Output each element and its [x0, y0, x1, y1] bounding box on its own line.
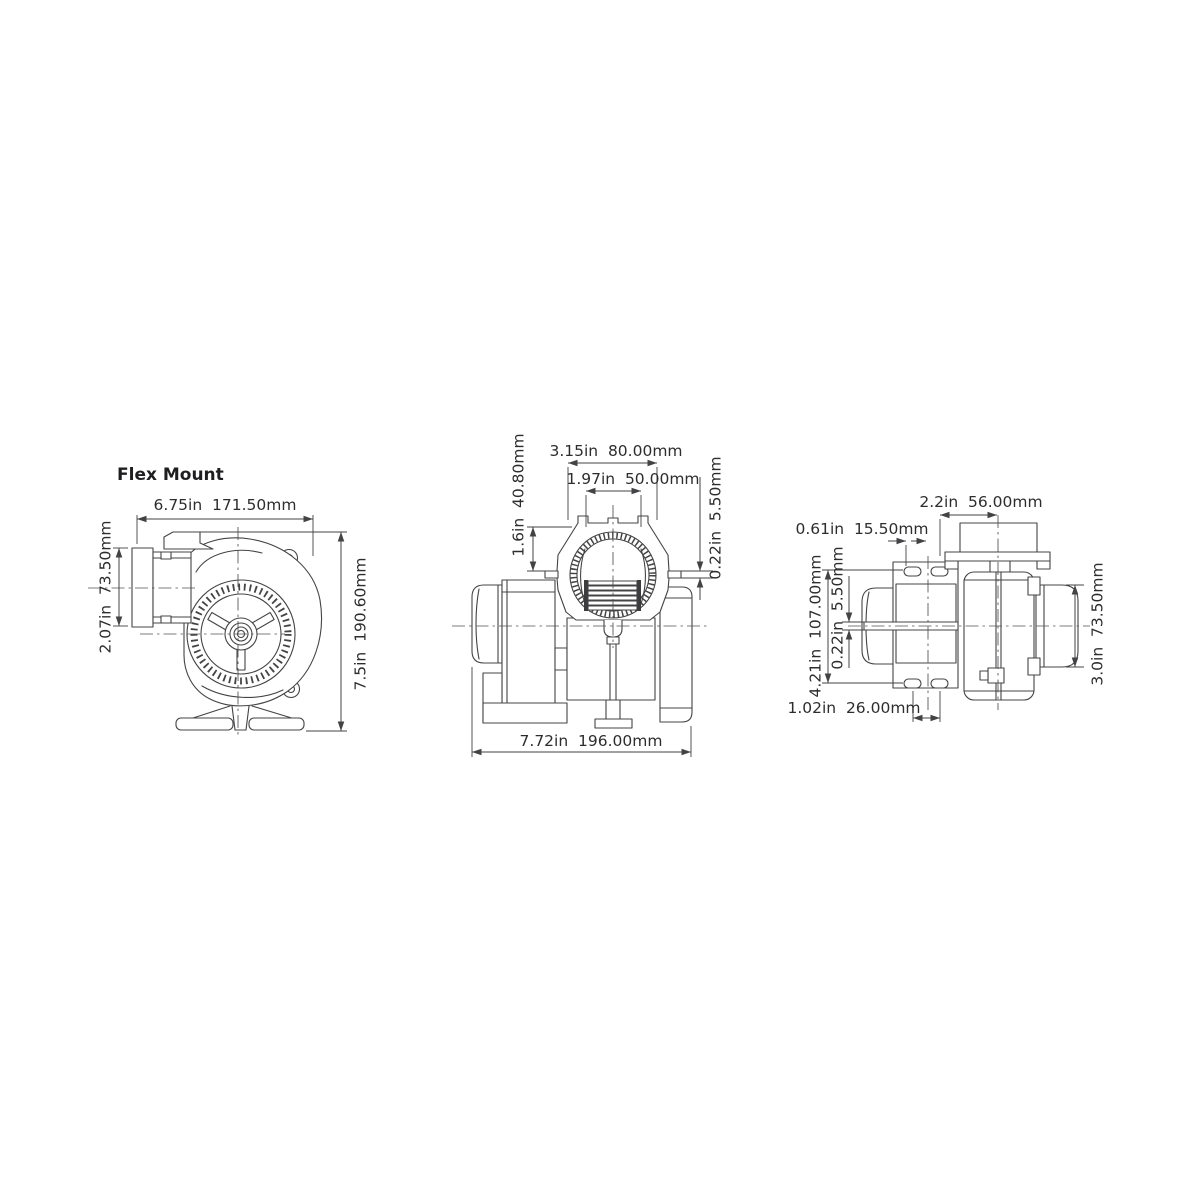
mounting-slot	[904, 679, 921, 688]
mounting-slot	[931, 679, 948, 688]
mounting-slot	[904, 567, 921, 576]
dim-label-flange-height: 1.6in 40.80mm	[510, 433, 528, 556]
inlet-tube	[153, 552, 191, 623]
dim-label-bracket-width: 2.2in 56.00mm	[919, 493, 1042, 511]
inlet-flange	[132, 548, 153, 627]
dim-label-side-inlet-height: 2.07in 73.50mm	[97, 520, 115, 653]
dim-label-flange-width: 3.15in 80.00mm	[549, 442, 682, 460]
dim-label-slot-spacing: 1.02in 26.00mm	[787, 699, 920, 717]
bracket-cap	[960, 523, 1037, 552]
dim-label-lip-thickness: 0.22in 5.50mm	[707, 456, 725, 579]
flange-lip-right	[668, 571, 681, 578]
technical-drawing-svg: Flex Mount	[0, 0, 1200, 1200]
base-foot-right	[249, 718, 304, 730]
drawing-page: Flex Mount	[0, 0, 1200, 1200]
motor-section-left	[502, 580, 555, 712]
motor-half-upper	[896, 584, 956, 622]
dim-label-overall-length: 7.72in 196.00mm	[520, 732, 663, 750]
end-view: 2.2in 56.00mm 0.61in 15.50mm 4.21in 107.…	[787, 493, 1106, 722]
dim-label-outlet-diameter: 3.0in 73.50mm	[1089, 562, 1107, 685]
inlet-duct	[132, 548, 191, 627]
motor-half-lower	[896, 630, 956, 663]
dim-label-gap-thickness: 0.22in 5.50mm	[829, 546, 847, 669]
housing-right-section	[660, 587, 692, 722]
top-view: 3.15in 80.00mm 1.97in 50.00mm 1.6in 40.8…	[452, 433, 725, 757]
bracket-flange-bar	[945, 552, 1050, 561]
flex-mount-bracket	[945, 523, 1050, 572]
bracket-stem	[990, 561, 1010, 572]
mounting-foot	[483, 703, 567, 723]
dim-label-side-overall-height: 7.5in 190.60mm	[352, 557, 370, 690]
grille-slats	[584, 580, 641, 611]
dim-label-slot-offset: 0.61in 15.50mm	[795, 520, 928, 538]
flange-lip-left	[545, 571, 558, 578]
base-foot-left	[176, 718, 233, 730]
drawing-title: Flex Mount	[117, 465, 224, 485]
dim-label-plate-height: 4.21in 107.00mm	[807, 555, 825, 698]
dim-label-port-diameter: 1.97in 50.00mm	[566, 470, 699, 488]
top-step-bracket	[164, 532, 213, 549]
dim-label-side-width: 6.75in 171.50mm	[154, 496, 297, 514]
side-view: Flex Mount	[88, 465, 370, 737]
